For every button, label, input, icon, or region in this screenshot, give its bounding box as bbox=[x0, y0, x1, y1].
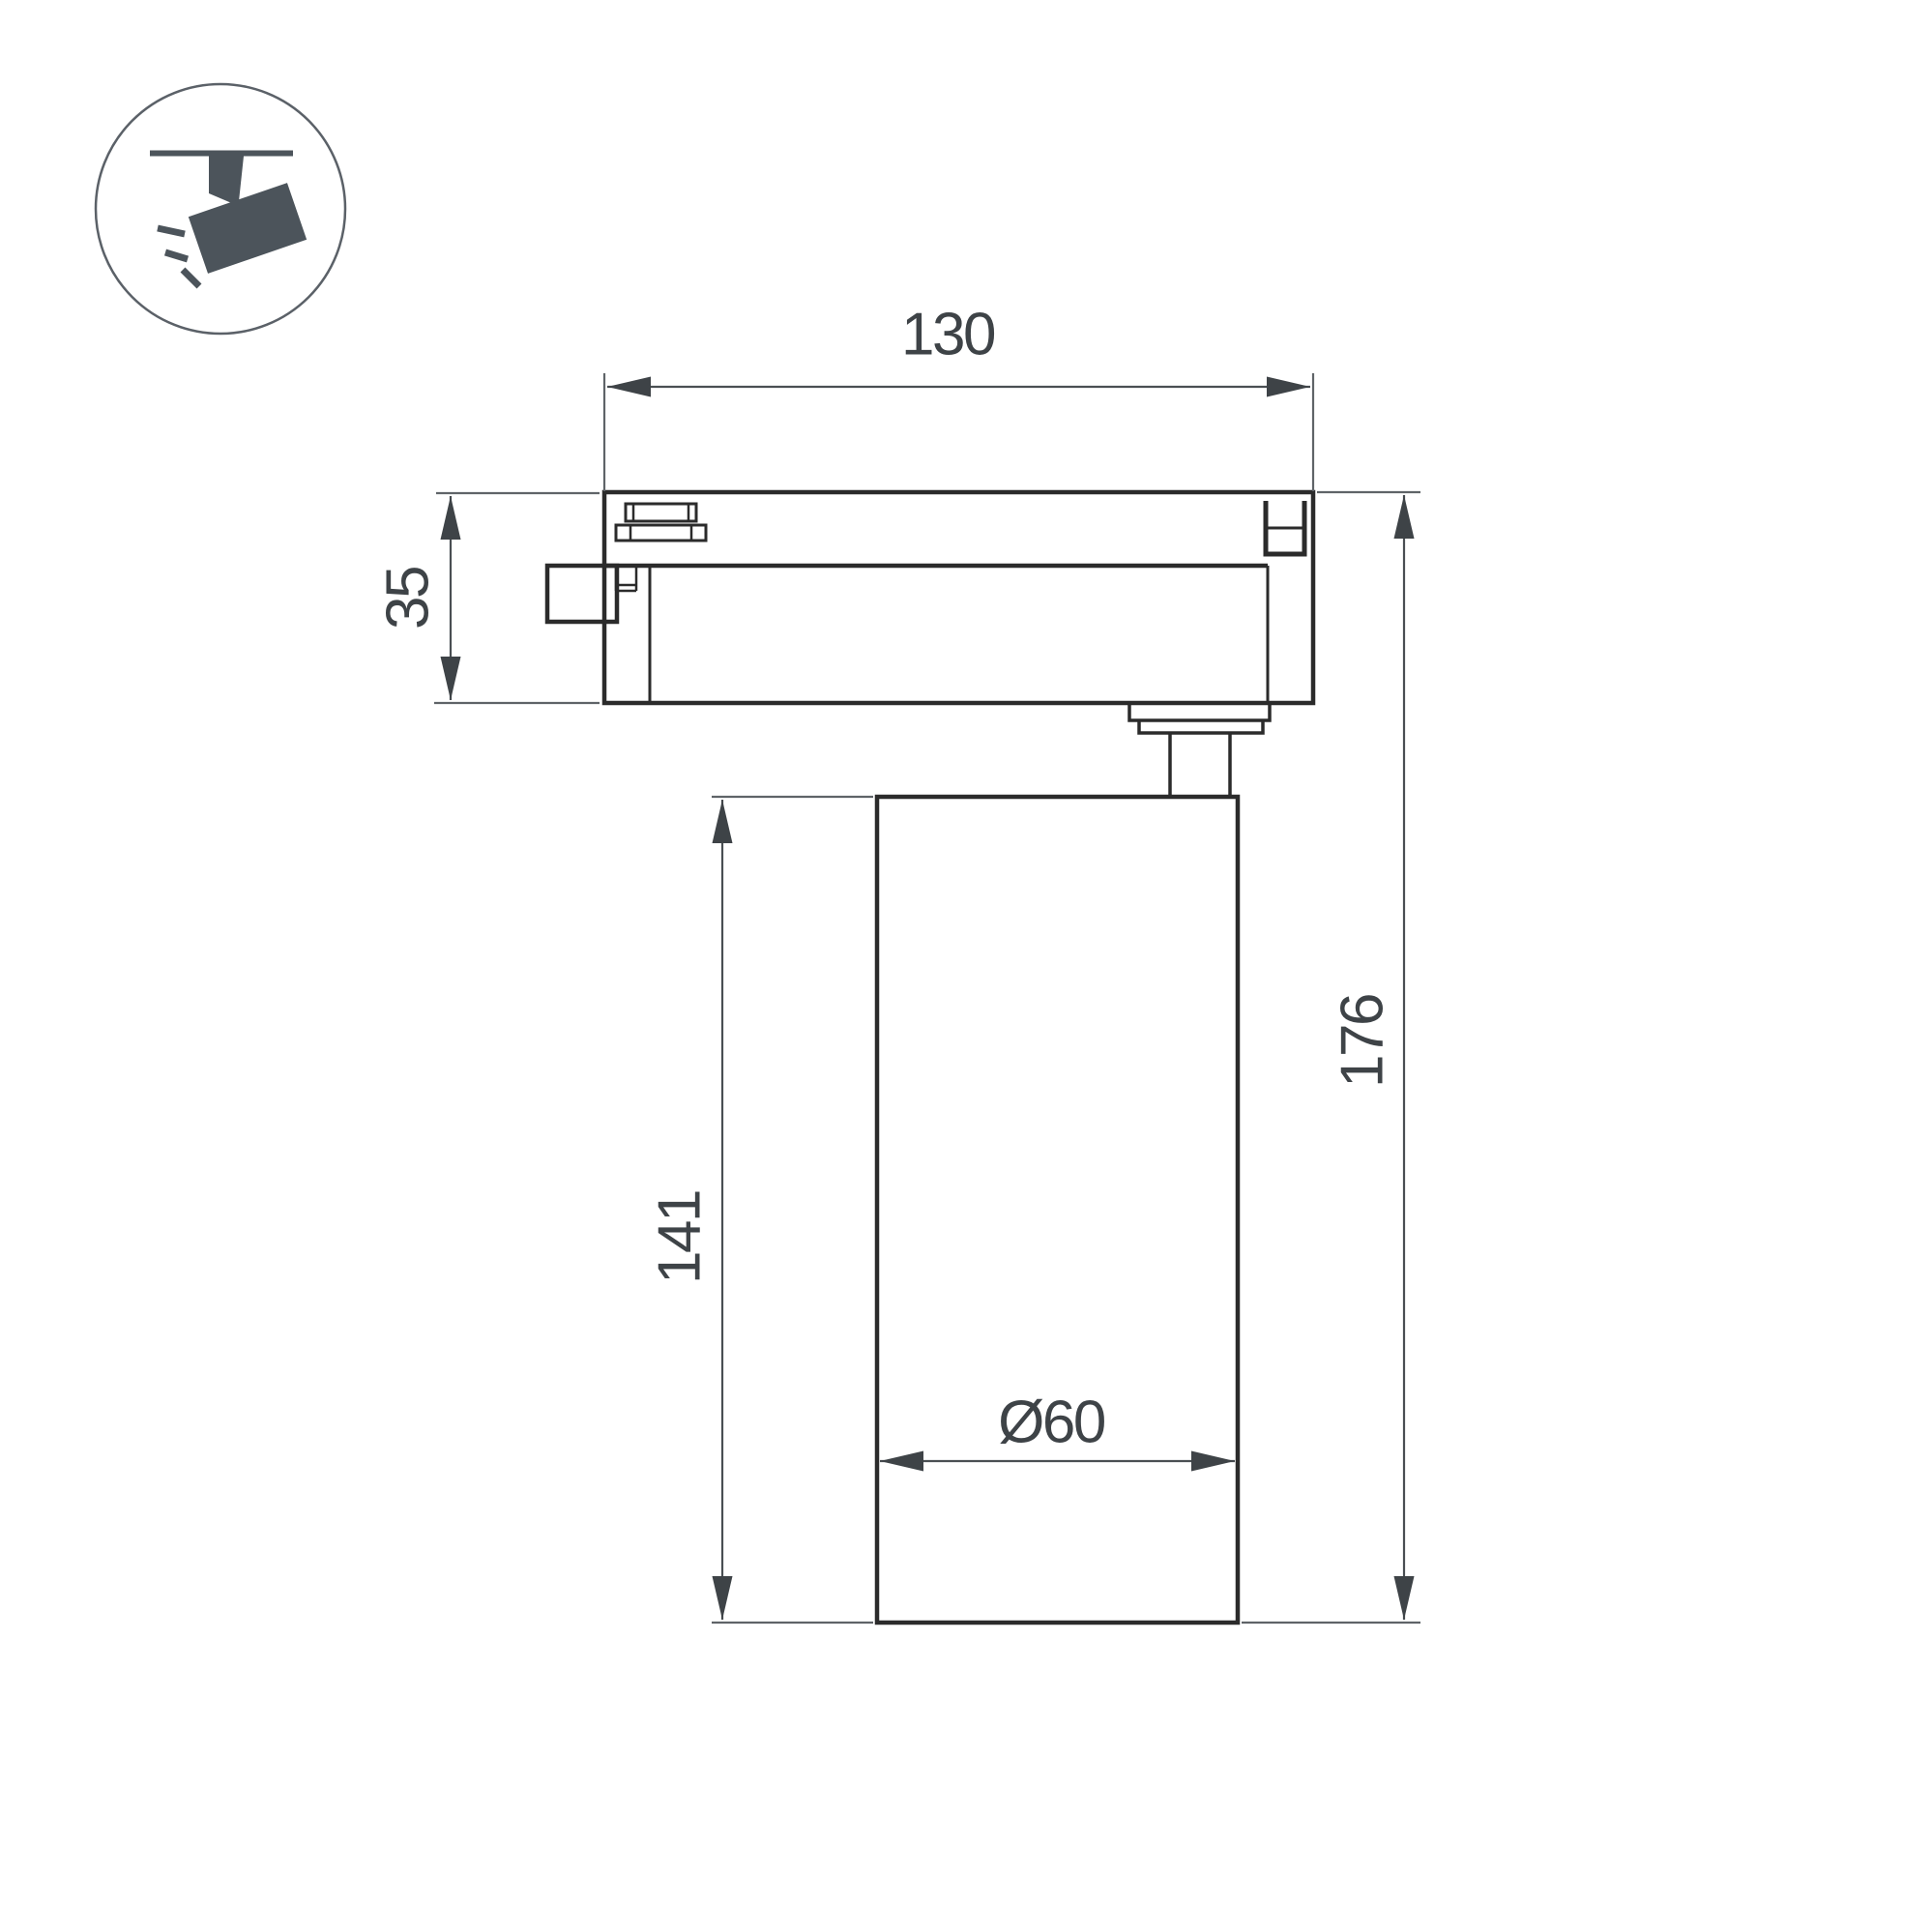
swivel-joint bbox=[1129, 703, 1270, 795]
arrowhead-up bbox=[1394, 495, 1415, 539]
arrowhead-left bbox=[607, 377, 651, 397]
dim-body-length-label: 141 bbox=[647, 1191, 714, 1284]
arrowhead-down bbox=[713, 1576, 733, 1620]
track-adapter-outline bbox=[547, 492, 1313, 795]
dimension-body-length: 141 bbox=[647, 797, 874, 1623]
arrowhead-left bbox=[880, 1451, 923, 1472]
dimension-track-width: 130 bbox=[604, 302, 1313, 492]
track-spotlight-icon bbox=[96, 84, 345, 334]
arrowhead-right bbox=[1267, 377, 1310, 397]
contact-clip-lower bbox=[616, 525, 706, 541]
lamp-body bbox=[877, 797, 1238, 1623]
adapter-body bbox=[604, 492, 1313, 703]
joint-flange-lower bbox=[1139, 720, 1263, 733]
contact-clip-upper bbox=[626, 504, 696, 521]
technical-drawing-page: 130 35 141 176 bbox=[0, 0, 1932, 1932]
arrowhead-up bbox=[441, 496, 461, 540]
arrowhead-up bbox=[713, 800, 733, 843]
dim-track-width-label: 130 bbox=[901, 302, 995, 368]
dim-adapter-height-label: 35 bbox=[375, 568, 442, 629]
ground-contact-clip bbox=[1266, 501, 1304, 554]
dimension-diameter: Ø60 bbox=[880, 1390, 1235, 1472]
icon-track-bar bbox=[150, 151, 293, 157]
arrowhead-down bbox=[441, 657, 461, 700]
dim-diameter-label: Ø60 bbox=[998, 1390, 1105, 1456]
dimensional-drawing: 130 35 141 176 bbox=[0, 0, 1932, 1932]
dimension-adapter-height: 35 bbox=[375, 493, 600, 703]
joint-flange-upper bbox=[1129, 703, 1270, 720]
arrowhead-down bbox=[1394, 1576, 1415, 1620]
arrowhead-right bbox=[1191, 1451, 1235, 1472]
dim-total-height-label: 176 bbox=[1330, 995, 1396, 1088]
clip-frame bbox=[626, 504, 696, 521]
